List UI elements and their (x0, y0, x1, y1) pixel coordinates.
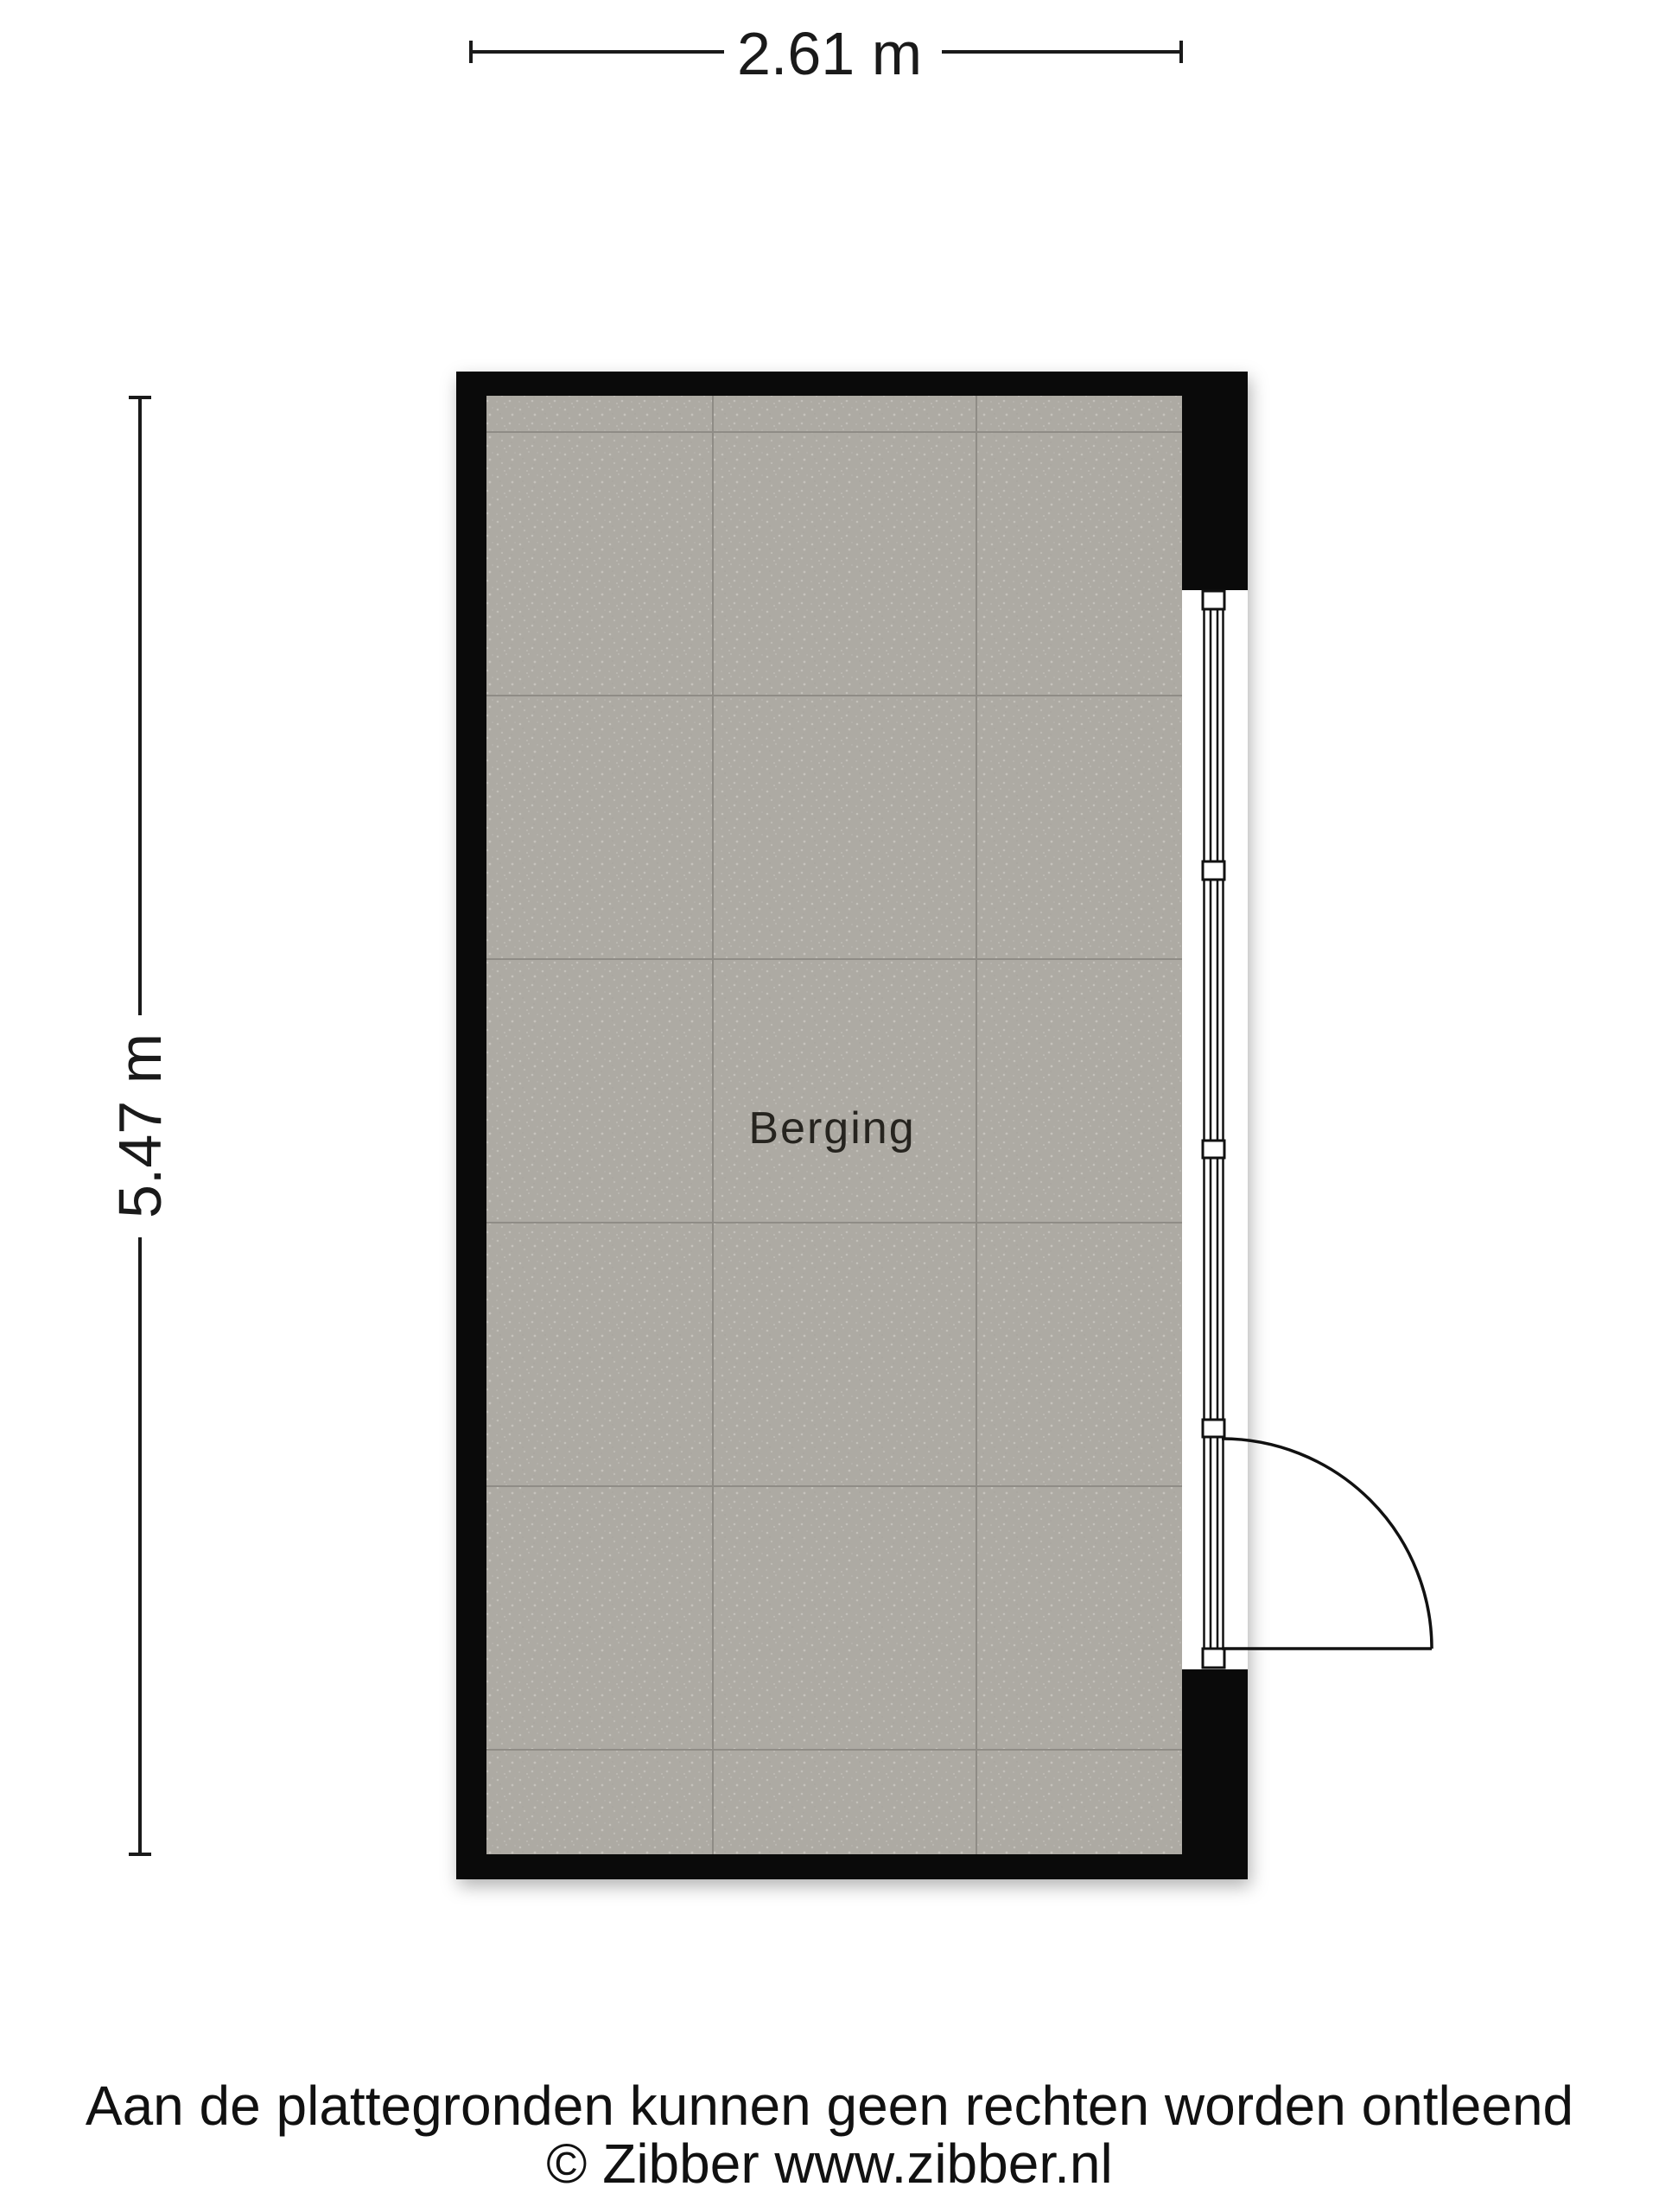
footer-disclaimer: Aan de plattegronden kunnen geen rechten… (86, 2075, 1573, 2137)
wall-bottom (456, 1854, 1248, 1879)
footer-copyright: © Zibber www.zibber.nl (546, 2133, 1112, 2195)
dimension-left: 5.47 m (106, 397, 174, 1854)
wall-top (456, 372, 1248, 396)
frame-hinge-block (1203, 1420, 1224, 1437)
frame-mullion-block (1203, 861, 1224, 880)
floor-plan-canvas: 2.61 m 5.47 m (0, 0, 1659, 2212)
wall-right-upper (1182, 372, 1248, 590)
frame-mullion-block (1203, 1141, 1224, 1158)
frame-head-block (1203, 591, 1224, 609)
dimension-top-label: 2.61 m (737, 20, 922, 87)
door-swing-arc (1222, 1439, 1432, 1649)
dimension-top: 2.61 m (471, 20, 1181, 87)
window-door-frame (1182, 590, 1248, 1669)
room-label: Berging (748, 1103, 915, 1154)
frame-sill-block (1203, 1649, 1224, 1668)
door (1222, 1439, 1432, 1649)
wall-right-lower (1182, 1669, 1248, 1879)
frame-opening-zone (1182, 590, 1248, 1669)
footer: Aan de plattegronden kunnen geen rechten… (86, 2075, 1573, 2195)
dimension-left-label: 5.47 m (106, 1033, 174, 1218)
wall-left (456, 372, 486, 1879)
